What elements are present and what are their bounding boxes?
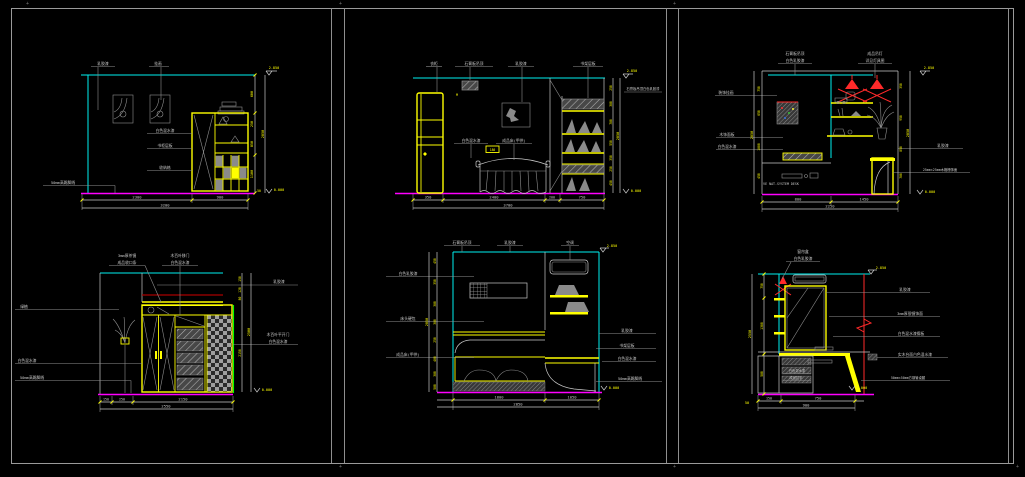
annotation: 木饰面板	[719, 132, 734, 137]
level-label: 2.850	[627, 69, 638, 73]
annotation: 白色混水漆	[718, 144, 737, 149]
level-label: 2.850	[924, 66, 935, 70]
annotation: 书柜层板	[157, 143, 172, 148]
dim-label: 250	[433, 337, 437, 343]
dim-label: 300	[433, 319, 437, 325]
annotation: 3mm厚茶镜	[118, 253, 136, 258]
annotation: 50mm高踢脚线	[20, 375, 45, 380]
dim-label: 1050	[567, 395, 577, 400]
dim-label: 900	[217, 195, 225, 200]
desk: VE NAT-SYSTEM DESK	[762, 153, 831, 186]
annotation: 成品拉手	[789, 375, 803, 380]
annotation: 木百叶平开门	[267, 332, 290, 337]
dim-label: 500	[760, 371, 764, 377]
annotation: 乳胶漆	[273, 279, 285, 284]
annotation: 白色乳胶漆	[399, 271, 418, 276]
corner-mark: +	[26, 2, 29, 7]
annotation: 白色混水漆	[156, 128, 175, 133]
shelf-unit	[550, 78, 604, 193]
dim-label: 300	[609, 101, 613, 107]
shelves	[550, 285, 589, 315]
picture-frame	[502, 103, 530, 127]
annotation: 绿植	[20, 304, 28, 309]
headboard	[470, 283, 527, 298]
picture-frames	[113, 95, 170, 123]
column-divider	[1008, 8, 1009, 463]
dim-label: 950	[899, 115, 903, 121]
dim-label: 550	[609, 140, 613, 146]
annotation: 窗帘盒	[797, 249, 809, 254]
annotation: 白色混水漆	[18, 358, 37, 363]
dim-label: 1100	[250, 170, 254, 178]
annotations: 衣柜 石膏板吊顶 乳胶漆 书架层板 白色混水漆 成品床(甲供) 180 石膏板吊…	[426, 61, 662, 160]
dimensions: 750 650 1000 450 2850 350 950 850 700 28…	[750, 66, 935, 212]
annotation: 180	[490, 148, 496, 152]
annotation: 25mm×25mm木格栅饰面	[923, 167, 958, 172]
annotation: 收纳格	[159, 165, 171, 170]
dim-label: 50	[745, 401, 749, 405]
dim-label: 300	[433, 371, 437, 377]
elevation-panel-4: 3mm厚茶镜 成品收口条 木百叶移门 白色混水漆 乳胶漆 绿植 白色混水漆 50…	[11, 235, 331, 463]
annotation: 石膏板吊顶	[453, 240, 472, 245]
annotation: 50mm高踢脚线	[618, 376, 643, 381]
level-label: 0.000	[857, 386, 868, 390]
annotation: 挂画	[154, 61, 162, 66]
annotation: 成品床(甲供)	[396, 352, 420, 357]
dim-label: 350	[425, 195, 433, 200]
corner-mark: +	[1016, 465, 1019, 470]
annotation: 乳胶漆	[621, 328, 633, 333]
dim-label: 750	[760, 283, 764, 289]
annotation: 详见灯具图	[866, 58, 885, 63]
mirror	[774, 286, 826, 350]
column-divider	[666, 8, 667, 463]
dim-label: 150	[238, 276, 242, 282]
dim-label: 650	[757, 110, 761, 116]
dim-label: 350	[433, 279, 437, 285]
desk: 白色混水漆 成品拉手	[758, 347, 870, 393]
dim-label: 450	[757, 173, 761, 179]
elevation-panel-5: 石膏板吊顶 乳胶漆 空调 白色乳胶漆 床头硬包 成品床(甲供) 乳胶漆 书架层板…	[344, 235, 666, 463]
dim-label: 250	[609, 166, 613, 172]
elevation-panel-2: M 衣柜	[344, 8, 666, 235]
dim-label: 600	[250, 91, 254, 97]
dim-label: 200	[549, 196, 555, 200]
dim-label: 750	[815, 396, 823, 401]
dim-label: 700	[609, 119, 613, 125]
annotation: 成品床(甲供)	[502, 138, 526, 143]
dim-label: 2850	[261, 130, 265, 138]
annotation: 50mm高踢脚线	[51, 180, 76, 185]
dim-label: 350	[609, 155, 613, 161]
annotation: 乳胶漆	[504, 240, 516, 245]
dim-label: 800	[795, 197, 803, 202]
dim-label: 350	[899, 83, 903, 89]
dim-label: 300	[433, 301, 437, 307]
dim-label: 3700	[503, 203, 513, 208]
annotation: 白色混水漆	[462, 138, 481, 143]
elevation-panel-1: 乳胶漆 挂画 白色混水漆 书柜层板 收纳格 50mm高踢脚线 600 250 8…	[11, 8, 331, 235]
annotation: 装饰挂画	[718, 90, 733, 95]
doorway	[870, 158, 895, 194]
level-label: 0.000	[274, 188, 285, 192]
annotation: 乳胶漆	[899, 287, 911, 292]
dim-label: 400	[433, 356, 437, 362]
annotation: 衣柜	[430, 61, 438, 66]
wall-art	[777, 102, 798, 124]
level-label: 2.850	[876, 266, 887, 270]
annotation: 成品吊灯	[867, 51, 882, 56]
dim-label: 2850	[906, 129, 910, 137]
dim-label: 1800	[494, 395, 504, 400]
dim-label: 80	[238, 297, 242, 301]
level-label: 0.000	[262, 388, 273, 392]
annotation: 白色乳胶漆	[786, 58, 805, 63]
corner-mark: +	[339, 465, 342, 470]
dim-label: 2300	[132, 195, 142, 200]
annotation: 成品收口条	[118, 260, 137, 265]
dim-label: 3200	[160, 203, 170, 208]
dim-label: 250	[119, 398, 125, 402]
annotation: 木百叶移门	[171, 253, 190, 258]
level-label: 0.000	[631, 189, 642, 193]
plant	[113, 317, 135, 393]
dim-label: 1300	[760, 322, 764, 330]
level-label: 0.000	[609, 386, 620, 390]
dim-label: 50	[257, 189, 261, 193]
dim-label: 2850	[616, 132, 620, 140]
brand-text: VE NAT-SYSTEM DESK	[763, 182, 799, 186]
annotation: 50mm×50mm方钢管桌腿	[891, 375, 926, 380]
annotation: 白色混水漆	[269, 339, 288, 344]
annotation: 白色混水漆	[171, 260, 190, 265]
ac-unit	[793, 275, 826, 283]
corner-mark: +	[673, 2, 676, 7]
plant	[867, 102, 894, 139]
dim-label: 250	[250, 121, 254, 127]
annotations: 乳胶漆 挂画 白色混水漆 书柜层板 收纳格 50mm高踢脚线	[43, 61, 192, 193]
dim-label: 2150	[238, 349, 242, 357]
ceiling-detail: M	[456, 81, 478, 97]
corner-mark: +	[673, 465, 676, 470]
elevation-panel-6: 白色混水漆 成品拉手 窗帘盒 白色乳胶漆 乳胶漆 3mm厚银镜饰面 白色混水漆搁…	[678, 235, 1008, 463]
dim-label: 250	[609, 85, 613, 91]
annotation: 乳胶漆	[97, 61, 109, 66]
annotation: 白色混水漆搁板	[898, 331, 925, 336]
dim-label: 2850	[513, 402, 523, 407]
dim-label: 850	[250, 141, 254, 147]
dim-label: 2150	[178, 397, 188, 402]
dim-label: 2850	[425, 318, 429, 326]
annotation: 书架层板	[619, 343, 634, 348]
dim-label: 2550	[161, 404, 171, 409]
dim-label: 2400	[489, 195, 499, 200]
level-label: 2.850	[269, 66, 280, 70]
dim-label: 1450	[859, 197, 869, 202]
dim-label: 700	[899, 173, 903, 179]
dim-label: 150	[766, 397, 772, 401]
dim-label: 750	[757, 86, 761, 92]
dim-label: 450	[609, 180, 613, 186]
annotation: 白色混水漆	[618, 356, 637, 361]
annotation: 石膏板吊顶	[786, 51, 805, 56]
dim-label: 1000	[757, 143, 761, 151]
detail-mark: M	[456, 93, 458, 97]
annotation: 乳胶漆	[515, 61, 527, 66]
annotation: 乳胶漆	[937, 143, 949, 148]
column-divider	[331, 8, 332, 463]
corner-mark: +	[339, 2, 342, 7]
walls	[395, 78, 605, 194]
bookcase	[192, 102, 248, 191]
ac-unit	[550, 260, 588, 274]
bed	[476, 159, 550, 194]
dim-label: 2550	[748, 330, 752, 338]
level-label: 0.000	[925, 190, 936, 194]
dimensions: 600 250 850 1100 50 2850 2.850 0.000 230…	[81, 66, 285, 210]
annotations: 石膏板吊顶 乳胶漆 空调 白色乳胶漆 床头硬包 成品床(甲供) 乳胶漆 书架层板…	[386, 240, 662, 382]
dim-label: 2250	[825, 204, 835, 209]
dim-label: 150	[103, 398, 109, 402]
dimensions: 250 300 700 550 350 250 450 2850 2.850 0…	[412, 69, 642, 210]
annotation: 白色乳胶漆	[794, 256, 813, 261]
tall-cabinet	[417, 93, 443, 193]
annotation: 床头硬包	[400, 316, 415, 321]
cad-sheet: + + + + + +	[0, 0, 1025, 477]
dim-label: 750	[579, 195, 587, 200]
annotation: 石膏板吊顶	[465, 61, 484, 66]
dim-label: 2500	[247, 328, 251, 336]
elevation-panel-3: VE NAT-SYSTEM DESK 石膏板吊顶 白色乳胶漆 成品吊灯 详见灯具…	[678, 8, 1008, 235]
annotation: 石膏板吊顶白色乳胶漆	[627, 86, 661, 91]
dim-label: 450	[433, 258, 437, 264]
level-label: 2.850	[607, 244, 618, 248]
wall-shelves	[827, 98, 873, 136]
side-cabinet	[545, 358, 599, 392]
annotation: 实木台面白色混水漆	[898, 352, 932, 357]
wardrobe	[142, 302, 234, 393]
annotation: 白色混水漆	[789, 368, 806, 373]
dim-label: 850	[899, 146, 903, 152]
annotation: 3mm厚银镜饰面	[897, 311, 923, 316]
bed	[453, 332, 545, 391]
dim-label: 2850	[750, 131, 754, 139]
annotations: 3mm厚茶镜 成品收口条 木百叶移门 白色混水漆 乳胶漆 绿植 白色混水漆 50…	[15, 253, 298, 393]
dim-label: 120	[238, 287, 242, 293]
dim-label: 500	[433, 384, 437, 390]
annotation: 空调	[566, 240, 574, 245]
annotation: 书架层板	[580, 61, 595, 66]
dim-label: 900	[803, 403, 811, 408]
